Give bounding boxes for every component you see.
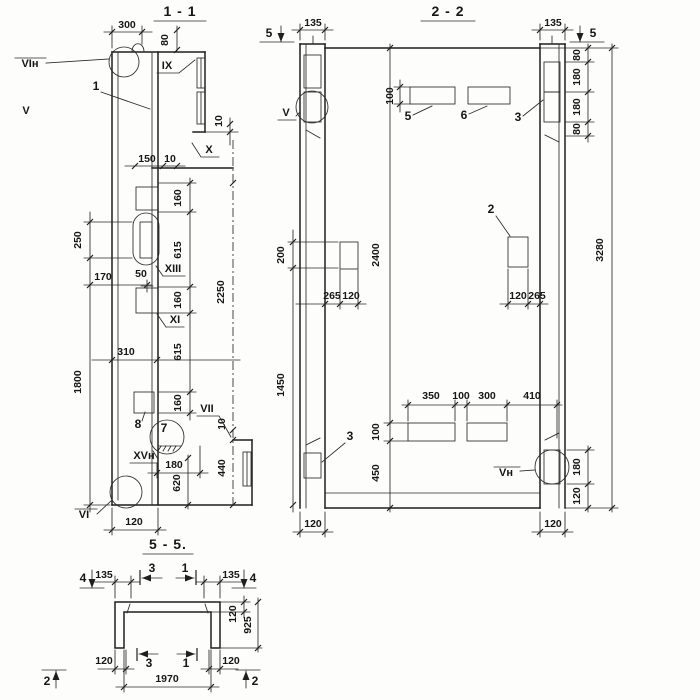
node-label-v-main: V (282, 107, 290, 119)
dim-120-web: 120 (227, 605, 239, 623)
part-label-3-bottom: 3 (347, 429, 354, 443)
embed-plate (544, 92, 560, 122)
dim-120-p2: 120 (509, 290, 527, 302)
dim-80: 80 (159, 34, 171, 46)
dim-120-br: 120 (222, 655, 240, 667)
mark-1-top: 1 (182, 561, 189, 575)
dim-310: 310 (117, 346, 135, 358)
dim-135-right: 135 (544, 17, 562, 29)
dim-120-bl: 120 (95, 655, 113, 667)
node-label-ix: IX (162, 60, 173, 72)
mark-2-left: 2 (44, 674, 51, 688)
section-1-1: 1 - 1 (15, 3, 252, 535)
node-label-xi: XI (170, 314, 180, 326)
embed-plate (136, 187, 158, 210)
section-5-5-title: 5 - 5. (149, 536, 187, 552)
part-label-1: 1 (93, 79, 100, 93)
dim-2400: 2400 (370, 243, 382, 267)
s55-outline (115, 602, 220, 648)
dim-620: 620 (171, 474, 183, 492)
dim-120-cr: 120 (544, 518, 562, 530)
dim-350: 350 (422, 390, 440, 402)
dim-160a: 160 (172, 189, 184, 207)
dim-160b: 160 (172, 291, 184, 309)
dim-80-b: 80 (571, 123, 583, 135)
node-label-vn: Vн (499, 467, 513, 479)
dim-300: 300 (118, 19, 136, 31)
mark-4-left: 4 (80, 571, 87, 585)
mark-3-bottom: 3 (146, 656, 153, 670)
dim-120: 120 (125, 516, 143, 528)
dim-120-cl: 120 (304, 518, 322, 530)
dim-1970: 1970 (155, 673, 179, 685)
part-label-6: 6 (461, 108, 468, 122)
dim-180-t2: 180 (571, 98, 583, 116)
dim-135-left: 135 (95, 569, 113, 581)
slot-insert (140, 222, 152, 258)
engineering-drawing-canvas: 1 - 1 (0, 0, 700, 700)
embed-plate-2 (508, 237, 528, 267)
dim-615b: 615 (172, 343, 184, 361)
dim-10-w: 10 (164, 153, 176, 165)
dim-150: 150 (138, 153, 156, 165)
node-circle-v (296, 91, 328, 123)
dim-3280: 3280 (594, 238, 606, 262)
node-label-xiii: XIII (165, 263, 182, 275)
s22-labels: V V 3 5 6 2 3 Vн (22, 100, 543, 479)
dim-265-lp: 265 (323, 290, 341, 302)
dim-135-right: 135 (222, 569, 240, 581)
dim-200: 200 (275, 246, 287, 264)
node-label-x: X (205, 144, 213, 156)
mark-2-right: 2 (252, 674, 259, 688)
s22-outline (296, 36, 618, 508)
dim-120-lp: 120 (342, 290, 360, 302)
dim-135-left: 135 (304, 17, 322, 29)
mark-1-bottom: 1 (183, 656, 190, 670)
dim-170: 170 (94, 271, 112, 283)
embed-plate-5 (410, 87, 455, 104)
dim-2250: 2250 (215, 280, 227, 304)
dim-1800: 1800 (72, 370, 84, 394)
dim-100-m: 100 (452, 390, 470, 402)
dim-265-p2: 265 (528, 290, 546, 302)
section-mark-5-right: 5 (590, 26, 597, 40)
node-label-vin: VIн (21, 58, 38, 70)
mark-3-top: 3 (149, 561, 156, 575)
s11-labels: VIн 1 IX X XIII XI 8 7 VII XVн VI (15, 58, 231, 521)
dim-250: 250 (72, 231, 84, 249)
node-label-v: V (22, 105, 30, 117)
dim-180: 180 (165, 459, 183, 471)
embed-plate (544, 62, 560, 92)
dim-180-t1: 180 (571, 68, 583, 86)
section-2-2-title: 2 - 2 (431, 3, 464, 19)
section-5-5: 5 - 5. 135 135 120 925 120 120 (42, 536, 262, 692)
dim-120-ch: 120 (571, 487, 583, 505)
dim-615a: 615 (172, 241, 184, 259)
part-label-2: 2 (488, 202, 495, 216)
embed-plate (304, 92, 321, 122)
embed-plate (304, 55, 321, 88)
lifting-slot (133, 213, 159, 265)
node-label-vii: VII (200, 403, 213, 415)
dim-925: 925 (242, 616, 254, 634)
embed-plate (304, 453, 321, 478)
drawing-sheet: 1 - 1 (0, 0, 700, 700)
node-label-xvn: XVн (133, 450, 154, 462)
mark-4-right: 4 (250, 571, 257, 585)
dim-80-top: 80 (571, 49, 583, 61)
dim-100-b: 100 (370, 423, 382, 441)
section-1-1-title: 1 - 1 (163, 3, 196, 19)
embed-plate (467, 423, 507, 441)
s55-dimensions: 135 135 120 925 120 120 1970 (95, 569, 262, 692)
embed-plate (134, 392, 154, 413)
part-label-5: 5 (405, 109, 412, 123)
dim-10-step: 10 (213, 115, 225, 127)
embed-plate-6 (468, 87, 510, 104)
dim-410: 410 (523, 390, 541, 402)
embed-plate (340, 242, 358, 269)
dim-440: 440 (216, 459, 228, 477)
dim-160c: 160 (172, 394, 184, 412)
embed-plate (544, 450, 560, 484)
section-mark-5-left: 5 (266, 26, 273, 40)
node-circle-vi (110, 476, 142, 508)
dim-450: 450 (370, 464, 382, 482)
part-label-8: 8 (135, 417, 142, 431)
anchor-cross (141, 280, 153, 292)
dim-180-r: 180 (571, 458, 583, 476)
dim-300: 300 (478, 390, 496, 402)
dim-50: 50 (135, 268, 147, 280)
part-label-3-top: 3 (515, 110, 522, 124)
node-label-vi: VI (79, 509, 89, 521)
s11-dimensions: 300 80 10 150 10 160 615 160 615 160 (72, 19, 240, 535)
dim-1450: 1450 (275, 373, 287, 397)
embed-plate (408, 423, 455, 441)
part-label-7: 7 (161, 421, 168, 435)
